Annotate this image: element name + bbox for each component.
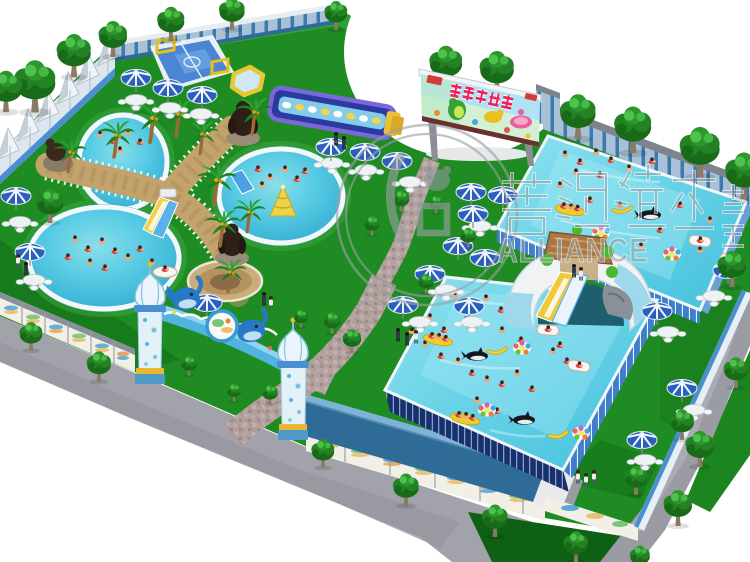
svg-text:ALLIANCE: ALLIANCE bbox=[497, 232, 649, 270]
